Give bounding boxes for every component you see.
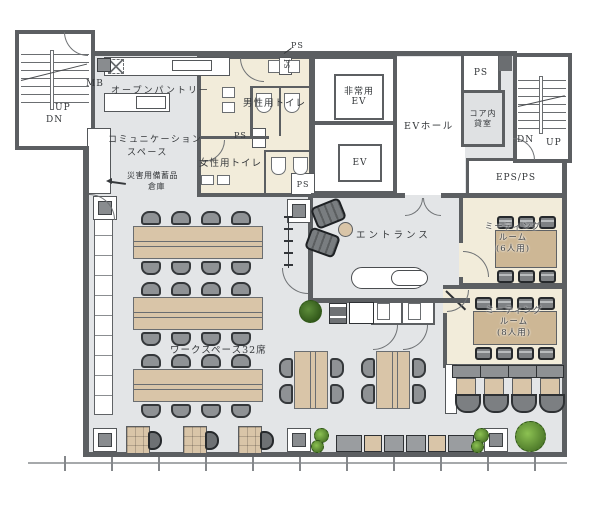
plant: [515, 421, 546, 452]
wall: [401, 300, 403, 323]
workspace-table: [133, 226, 263, 259]
chair: [361, 358, 375, 378]
stair-rail: [50, 50, 54, 110]
workspace-table-4: [294, 351, 328, 409]
counter-stool: [484, 378, 504, 400]
label-core-storage: 貸室: [474, 119, 492, 129]
label-mb: MB: [86, 79, 104, 89]
disaster-arrow-head: [106, 178, 112, 184]
booth-desk: [238, 426, 262, 454]
floor-plan: 非常用 EV EV PS コア内 貸室 EPS/PS UP DN DN UP: [0, 0, 604, 505]
label-line: (8人用): [497, 328, 531, 339]
chair: [231, 211, 251, 225]
room-ps: PS: [461, 53, 501, 93]
label-disaster-storage: 倉庫: [148, 181, 165, 192]
label-meeting-room-8: ミーティング ルーム (8人用): [471, 302, 557, 342]
sink-basin: [201, 175, 214, 185]
label-entrance: エントランス: [356, 227, 431, 241]
high-counter: [452, 365, 564, 378]
column: [93, 428, 117, 452]
wall-top: [93, 51, 517, 56]
counter-stool: [512, 378, 532, 400]
booth-desk: [126, 426, 150, 454]
label-emergency-ev: EV: [351, 97, 366, 107]
label-ps: PS: [297, 180, 310, 189]
wall: [311, 193, 405, 198]
column: [98, 433, 112, 447]
urinal: [268, 60, 280, 73]
meeting-chair: [497, 270, 514, 283]
counter-stool: [456, 378, 476, 400]
sink-basin: [217, 175, 230, 185]
chair: [412, 358, 426, 378]
workspace-table: [133, 297, 263, 330]
label-line: ルーム: [499, 233, 527, 244]
wall: [441, 193, 565, 198]
pantry-counter: [172, 60, 212, 71]
chair: [201, 282, 221, 296]
meeting-chair: [539, 270, 556, 283]
sink-basin: [222, 87, 235, 98]
bench-segment: [384, 435, 404, 452]
wall-left: [83, 146, 89, 457]
label-meeting-room-6: ミーティング ルーム (6人用): [481, 219, 545, 257]
wall: [264, 150, 266, 194]
label-ps: PS: [474, 68, 488, 78]
chair: [141, 211, 161, 225]
label-emergency-ev: 非常用: [344, 87, 374, 97]
printer: [329, 303, 347, 324]
wall-bottom: [83, 452, 567, 457]
shaft-box-ps: PS: [291, 173, 315, 195]
room-emergency-ev: 非常用 EV: [334, 74, 384, 120]
chair: [141, 404, 161, 418]
label-ev: EV: [352, 158, 367, 168]
chair: [279, 384, 293, 404]
chair: [201, 404, 221, 418]
room-core-storage: コア内 貸室: [461, 90, 505, 147]
stair-treads: [21, 54, 89, 108]
chair: [231, 282, 251, 296]
vending-machine: [349, 302, 374, 324]
room-eps-ps: EPS/PS: [466, 158, 566, 197]
chair: [231, 404, 251, 418]
column: [292, 204, 306, 218]
column: [489, 433, 503, 447]
chair: [141, 354, 161, 368]
label-core-storage: コア内: [470, 109, 497, 119]
meeting-chair: [538, 347, 555, 360]
label-dn: DN: [517, 135, 534, 145]
booth-desk: [183, 426, 207, 454]
label-eps-ps: EPS/PS: [496, 173, 536, 183]
column: [97, 58, 111, 72]
chair: [231, 354, 251, 368]
label-line: (6人用): [496, 244, 530, 255]
label-line: ミーティング: [486, 306, 543, 317]
bench-seating: [336, 435, 474, 452]
meeting-chair: [517, 347, 534, 360]
sink-basin: [222, 102, 235, 113]
wall-right: [562, 161, 567, 457]
meeting-chair: [496, 347, 513, 360]
label-up: UP: [546, 138, 562, 148]
chair: [412, 384, 426, 404]
magazine-rack: [284, 216, 293, 268]
label-line: ルーム: [500, 317, 528, 328]
label-ev-hall: EVホール: [404, 118, 454, 132]
booth-seat: [408, 303, 421, 320]
chair: [361, 384, 375, 404]
wall: [313, 121, 395, 125]
label-communication-space: コミュニケーション: [108, 132, 202, 145]
chair: [141, 261, 161, 275]
reception-counter-inner: [391, 270, 428, 286]
plant: [311, 440, 324, 453]
wall: [252, 86, 310, 88]
plant: [471, 440, 484, 453]
column: [292, 433, 306, 447]
label-ps-small: PS: [282, 59, 290, 69]
chair: [201, 211, 221, 225]
chair: [201, 354, 221, 368]
bench-segment: [406, 435, 426, 452]
chair: [141, 282, 161, 296]
label-line: ミーティング: [485, 222, 542, 233]
label-mens-toilet: 男性用トイレ: [243, 95, 306, 109]
room-ev: EV: [338, 144, 382, 182]
label-ps: PS: [234, 131, 247, 140]
chair: [279, 358, 293, 378]
label-dn: DN: [46, 115, 63, 125]
toilet: [293, 157, 308, 175]
toilet: [271, 157, 286, 175]
chair: [171, 261, 191, 275]
chair: [330, 384, 344, 404]
meeting-chair: [518, 270, 535, 283]
meeting-chair: [475, 347, 492, 360]
chair: [201, 261, 221, 275]
column: [499, 56, 512, 71]
column: [287, 428, 311, 452]
workspace-table-4: [376, 351, 410, 409]
bench-segment: [448, 435, 474, 452]
wall: [250, 86, 253, 138]
booth-seat: [377, 303, 390, 320]
round-side-table: [338, 222, 353, 237]
wall-cabinets: [94, 215, 113, 415]
label-up: UP: [55, 103, 71, 113]
counter-stool: [540, 378, 560, 400]
bench-segment: [364, 435, 382, 452]
label-ps: PS: [291, 41, 304, 50]
window-mullions: [64, 456, 566, 471]
label-communication-space: スペース: [127, 145, 168, 158]
chair: [171, 211, 191, 225]
plant: [299, 300, 322, 323]
label-womens-toilet: 女性用トイレ: [199, 155, 262, 169]
chair: [171, 354, 191, 368]
bench-segment: [428, 435, 446, 452]
label-disaster-storage: 災害用備蓄品: [127, 170, 178, 181]
chair: [141, 332, 161, 346]
bench-segment: [336, 435, 362, 452]
workspace-table: [133, 369, 263, 402]
chair: [231, 261, 251, 275]
wall: [264, 150, 310, 152]
label-open-pantry: オープンパントリー: [111, 83, 210, 96]
chair: [330, 358, 344, 378]
pantry-counter: [136, 96, 166, 109]
label-workspace: ワークスペース32席: [170, 342, 267, 356]
stair-rail: [539, 76, 543, 134]
chair: [171, 404, 191, 418]
chair: [171, 282, 191, 296]
